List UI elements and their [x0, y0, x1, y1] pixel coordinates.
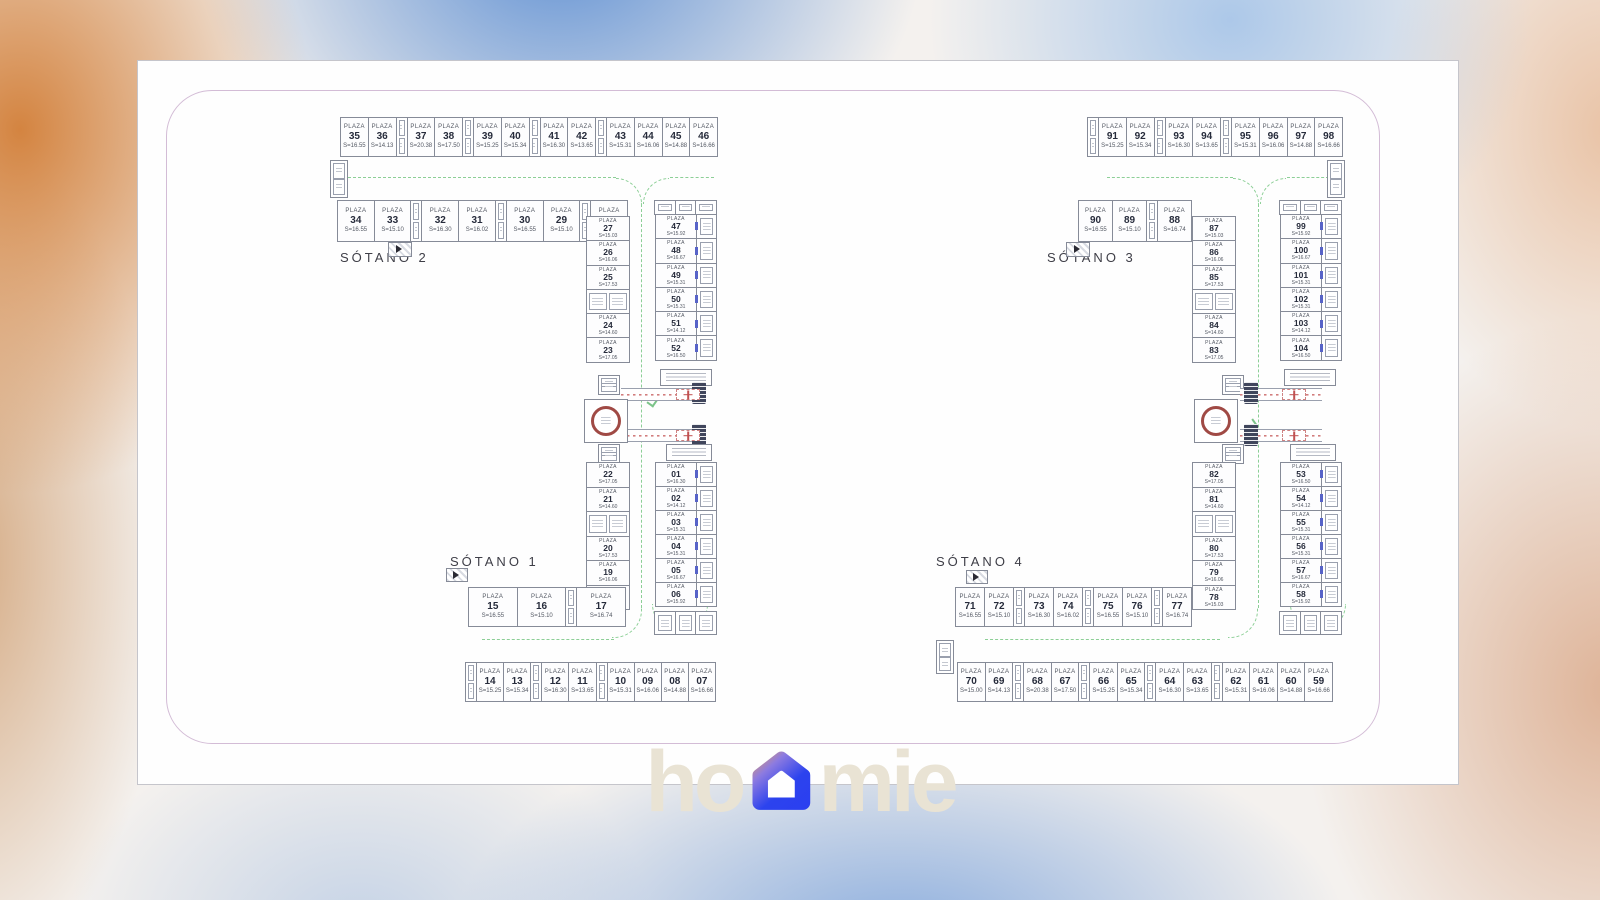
stall-area: S=16.55	[482, 613, 505, 620]
entry-arrow-icon	[973, 573, 979, 581]
stall-number: 09	[642, 677, 653, 687]
stall-number: 34	[350, 216, 361, 226]
stall-plaza-label: PLAZA	[531, 594, 552, 601]
drive-lane-dash	[641, 204, 642, 608]
stall-number: 33	[387, 216, 398, 226]
parking-stall: PLAZA 44 S=16.06	[634, 117, 663, 157]
stall-area: S=14.60	[599, 504, 618, 510]
storage-cell	[1279, 611, 1301, 635]
storage-cell	[1321, 582, 1342, 607]
storage-cell	[696, 486, 717, 511]
stall-number: 30	[519, 216, 530, 226]
stall-area: S=15.31	[667, 527, 686, 533]
s1-mid-row: PLAZA 15 S=16.55 PLAZA 16 S=15.10 PLAZA …	[468, 587, 626, 627]
parking-stall: PLAZA 86 S=16.06	[1192, 240, 1236, 265]
logo-text-left: ho	[645, 749, 742, 816]
parking-stall: PLAZA 43 S=15.31	[606, 117, 635, 157]
s2-aisle-storage-box	[330, 160, 348, 198]
drive-lane-dash	[670, 177, 714, 178]
parking-stall: PLAZA 14 S=15.25	[476, 662, 504, 702]
stall-plaza-label: PLAZA	[382, 208, 403, 215]
stall-area: S=16.06	[1205, 257, 1224, 263]
stall-area: S=15.31	[667, 304, 686, 310]
stall-plaza-label: PLAZA	[988, 594, 1009, 601]
stall-area: S=15.31	[1234, 143, 1257, 150]
stall-plaza-label: PLAZA	[610, 669, 631, 676]
stall-number: 15	[487, 602, 498, 612]
stall-area: S=15.10	[550, 227, 573, 234]
stall-number: 84	[1209, 321, 1218, 330]
stall-number: 04	[671, 542, 680, 551]
stall-area: S=16.55	[343, 143, 366, 150]
stall-area: S=13.65	[571, 688, 594, 695]
parking-stall: PLAZA 91 S=15.25	[1098, 117, 1127, 157]
stall-plaza-label: PLAZA	[988, 669, 1009, 676]
storage-cell	[696, 287, 717, 312]
stall-area: S=16.67	[1292, 255, 1311, 261]
stall-plaza-label: PLAZA	[1055, 669, 1076, 676]
stall-plaza-label: PLAZA	[430, 208, 451, 215]
stall-plaza-label: PLAZA	[1164, 208, 1185, 215]
parking-stall: PLAZA 24 S=14.60	[586, 313, 630, 338]
parking-stall: PLAZA 50 S=15.31	[655, 287, 697, 312]
s4-bottom-row: PLAZA 70 S=15.00 PLAZA 69 S=14.13 PLAZA …	[957, 662, 1333, 702]
stall-area: S=17.53	[1205, 282, 1224, 288]
storage-unit	[1192, 511, 1236, 537]
parking-stall: PLAZA 32 S=16.30	[421, 200, 459, 242]
storage-unit	[1078, 662, 1090, 702]
parking-stall: PLAZA 42 S=13.65	[567, 117, 596, 157]
stall-area: S=16.30	[543, 143, 566, 150]
parking-stall: PLAZA 36 S=14.13	[368, 117, 397, 157]
stall-area: S=16.30	[1028, 613, 1051, 620]
stall-number: 60	[1286, 677, 1297, 687]
stairs-icon	[1244, 424, 1258, 446]
stall-number: 81	[1209, 495, 1218, 504]
stall-area: S=17.05	[1205, 355, 1224, 361]
storage-cell	[696, 311, 717, 336]
stall-area: S=15.03	[1205, 602, 1224, 608]
parking-stall: PLAZA 16 S=15.10	[517, 587, 567, 627]
storage-unit	[1082, 587, 1094, 627]
stall-plaza-label: PLAZA	[480, 669, 501, 676]
parking-stall: PLAZA 93 S=16.30	[1165, 117, 1194, 157]
parking-stall: PLAZA 100 S=16.67	[1280, 238, 1322, 263]
storage-cell	[1321, 287, 1342, 312]
parking-stall: PLAZA 34 S=16.55	[337, 200, 375, 242]
stall-plaza-label: PLAZA	[410, 124, 431, 131]
stall-number: 99	[1296, 222, 1305, 231]
stall-plaza-label: PLAZA	[372, 124, 393, 131]
stall-area: S=16.06	[1205, 577, 1224, 583]
stall-number: 86	[1209, 248, 1218, 257]
stall-number: 70	[966, 677, 977, 687]
storage-cell	[1321, 462, 1342, 487]
stall-area: S=14.12	[667, 503, 686, 509]
stall-number: 79	[1209, 568, 1218, 577]
parking-stall: PLAZA 90 S=16.55	[1078, 200, 1113, 242]
parking-stall: PLAZA 15 S=16.55	[468, 587, 518, 627]
stall-number: 80	[1209, 544, 1218, 553]
parking-stall: PLAZA 94 S=13.65	[1192, 117, 1221, 157]
stall-number: 101	[1294, 271, 1308, 280]
storage-unit	[1220, 117, 1232, 157]
stall-plaza-label: PLAZA	[1093, 669, 1114, 676]
parking-stall: PLAZA 61 S=16.06	[1249, 662, 1278, 702]
s2-second-row: PLAZA 34 S=16.55 PLAZA 33 S=15.10 PLAZA …	[337, 200, 628, 242]
stall-plaza-label: PLAZA	[1225, 669, 1246, 676]
storage-cell	[1320, 611, 1342, 635]
elevator-circle-icon	[591, 406, 621, 436]
stall-number: 61	[1258, 677, 1269, 687]
parking-stall: PLAZA 52 S=16.50	[655, 335, 697, 360]
storage-cell	[1321, 214, 1342, 239]
stall-area: S=15.34	[504, 143, 527, 150]
storage-cell	[696, 534, 717, 559]
stall-area: S=14.88	[664, 688, 687, 695]
s3-top-row: PLAZA 91 S=15.25 PLAZA 92 S=15.34 PLAZA …	[1087, 117, 1343, 157]
parking-stall: PLAZA 53 S=16.50	[1280, 462, 1322, 487]
stall-number: 12	[550, 677, 561, 687]
parking-stall: PLAZA 60 S=14.88	[1277, 662, 1306, 702]
stall-area: S=16.06	[1262, 143, 1285, 150]
stall-number: 94	[1201, 132, 1212, 142]
parking-stall: PLAZA 70 S=15.00	[957, 662, 986, 702]
storage-cell	[696, 238, 717, 263]
parking-stall: PLAZA 80 S=17.53	[1192, 536, 1236, 562]
stall-area: S=14.60	[1205, 504, 1224, 510]
parking-stall: PLAZA 58 S=15.92	[1280, 582, 1322, 607]
parking-stall: PLAZA 37 S=20.38	[407, 117, 436, 157]
parking-stall: PLAZA 11 S=13.65	[568, 662, 596, 702]
stall-plaza-label: PLAZA	[572, 669, 593, 676]
stall-area: S=16.55	[513, 227, 536, 234]
parking-stall: PLAZA 75 S=16.55	[1093, 587, 1123, 627]
stall-number: 65	[1126, 677, 1137, 687]
storage-cell	[696, 263, 717, 288]
parking-stall: PLAZA 20 S=17.53	[586, 536, 630, 562]
sotano-1-label: SÓTANO 1	[450, 554, 539, 569]
stall-area: S=16.06	[1252, 688, 1275, 695]
sotano-2-label: SÓTANO 2	[340, 250, 429, 265]
stall-area: S=15.25	[1101, 143, 1124, 150]
stall-number: 73	[1033, 602, 1044, 612]
stall-number: 87	[1209, 224, 1218, 233]
stall-plaza-label: PLAZA	[1085, 208, 1106, 215]
stall-number: 71	[964, 602, 975, 612]
drive-lane-dash	[1107, 177, 1233, 178]
stall-number: 95	[1240, 132, 1251, 142]
parking-stall: PLAZA 21 S=14.60	[586, 487, 630, 513]
storage-cell	[696, 582, 717, 607]
stall-number: 88	[1169, 216, 1180, 226]
stall-number: 05	[671, 566, 680, 575]
stall-plaza-label: PLAZA	[638, 124, 659, 131]
storage-cell	[1300, 200, 1322, 215]
stall-plaza-label: PLAZA	[1253, 669, 1274, 676]
hoomie-logo: ho mie	[645, 748, 954, 816]
stall-area: S=15.10	[988, 613, 1011, 620]
stall-area: S=14.12	[667, 328, 686, 334]
stall-plaza-label: PLAZA	[637, 669, 658, 676]
storage-cell	[654, 200, 676, 215]
stall-area: S=15.31	[667, 551, 686, 557]
stall-area: S=17.05	[1205, 479, 1224, 485]
entry-arrow-icon	[1074, 245, 1080, 253]
stall-area: S=15.34	[1129, 143, 1152, 150]
stall-number: 93	[1173, 132, 1184, 142]
drive-lane-dash	[985, 639, 1220, 640]
stall-number: 31	[471, 216, 482, 226]
stall-area: S=15.10	[1126, 613, 1149, 620]
stall-number: 19	[603, 568, 612, 577]
drive-lane-dash	[348, 177, 616, 178]
stall-number: 100	[1294, 246, 1308, 255]
parking-stall: PLAZA 27 S=15.03	[586, 216, 630, 241]
stall-number: 07	[696, 677, 707, 687]
storage-cell	[1279, 200, 1301, 215]
stall-area: S=14.88	[665, 143, 688, 150]
stall-area: S=16.50	[1292, 479, 1311, 485]
stall-area: S=16.50	[1292, 353, 1311, 359]
stall-number: 42	[576, 132, 587, 142]
stall-area: S=15.31	[609, 688, 632, 695]
ramp-cross-icon	[1282, 389, 1306, 400]
parking-stall: PLAZA 97 S=14.88	[1287, 117, 1316, 157]
stall-number: 52	[671, 344, 680, 353]
stall-number: 38	[443, 132, 454, 142]
ramp-cross-icon	[1282, 430, 1306, 441]
s3-aisle-storage-box	[1327, 160, 1345, 198]
stall-number: 102	[1294, 295, 1308, 304]
stall-plaza-label: PLAZA	[961, 669, 982, 676]
stall-plaza-label: PLAZA	[1166, 594, 1187, 601]
stall-plaza-label: PLAZA	[482, 594, 503, 601]
s4-storage-row	[1280, 611, 1342, 635]
stall-number: 75	[1102, 602, 1113, 612]
stall-plaza-label: PLAZA	[1235, 124, 1256, 131]
parking-stall: PLAZA 85 S=17.53	[1192, 265, 1236, 290]
parking-stall: PLAZA 102 S=15.31	[1280, 287, 1322, 312]
stall-plaza-label: PLAZA	[571, 124, 592, 131]
parking-stall: PLAZA 81 S=14.60	[1192, 487, 1236, 513]
stall-plaza-label: PLAZA	[1159, 669, 1180, 676]
stall-area: S=14.88	[1290, 143, 1313, 150]
parking-stall: PLAZA 64 S=16.30	[1155, 662, 1184, 702]
parking-stall: PLAZA 73 S=16.30	[1024, 587, 1054, 627]
storage-cell	[695, 200, 717, 215]
stall-area: S=16.30	[1168, 143, 1191, 150]
page-background: { "labels": { "plaza": "PLAZA" }, "logo"…	[0, 0, 1600, 900]
storage-cell	[695, 611, 717, 635]
parking-stall: PLAZA 55 S=15.31	[1280, 510, 1322, 535]
s4-col-82-78: PLAZA 82 S=17.05 PLAZA 81 S=14.60 PLAZA …	[1192, 462, 1236, 610]
stall-plaza-label: PLAZA	[1187, 669, 1208, 676]
stall-plaza-label: PLAZA	[1281, 669, 1302, 676]
parking-stall: PLAZA 67 S=17.50	[1051, 662, 1080, 702]
stall-area: S=16.55	[1084, 227, 1107, 234]
storage-cell	[1321, 238, 1342, 263]
stall-area: S=16.74	[1163, 227, 1186, 234]
parking-stall: PLAZA 68 S=20.38	[1023, 662, 1052, 702]
stall-number: 36	[377, 132, 388, 142]
stall-plaza-label: PLAZA	[345, 208, 366, 215]
parking-stall: PLAZA 77 S=16.74	[1162, 587, 1192, 627]
storage-unit	[1146, 200, 1158, 242]
stall-number: 103	[1294, 319, 1308, 328]
stall-area: S=16.30	[429, 227, 452, 234]
stall-number: 45	[670, 132, 681, 142]
parking-stall: PLAZA 09 S=16.06	[634, 662, 662, 702]
storage-unit	[529, 117, 541, 157]
stall-area: S=16.66	[692, 143, 715, 150]
stall-number: 74	[1062, 602, 1073, 612]
stall-area: S=15.31	[1292, 527, 1311, 533]
stall-number: 35	[349, 132, 360, 142]
storage-cell	[1321, 534, 1342, 559]
stall-plaza-label: PLAZA	[1121, 669, 1142, 676]
parking-stall: PLAZA 06 S=15.92	[655, 582, 697, 607]
stall-area: S=13.65	[1195, 143, 1218, 150]
entry-arrow-icon	[453, 571, 459, 579]
parking-stall: PLAZA 41 S=16.30	[540, 117, 569, 157]
storage-cell	[1321, 311, 1342, 336]
stall-number: 51	[671, 319, 680, 328]
stall-area: S=14.12	[1292, 328, 1311, 334]
storage-cell	[654, 611, 676, 635]
stall-area: S=15.31	[667, 280, 686, 286]
parking-stall: PLAZA 07 S=16.66	[688, 662, 716, 702]
stall-area: S=15.25	[1092, 688, 1115, 695]
stall-plaza-label: PLAZA	[1057, 594, 1078, 601]
stall-area: S=17.53	[599, 553, 618, 559]
parking-stall: PLAZA 79 S=16.06	[1192, 560, 1236, 586]
stall-area: S=14.60	[1205, 330, 1224, 336]
parking-stall: PLAZA 47 S=15.92	[655, 214, 697, 239]
stall-area: S=15.92	[667, 599, 686, 605]
stall-plaza-label: PLAZA	[1318, 124, 1339, 131]
parking-stall: PLAZA 88 S=16.74	[1157, 200, 1192, 242]
parking-stall: PLAZA 22 S=17.05	[586, 462, 630, 488]
parking-stall: PLAZA 31 S=16.02	[458, 200, 496, 242]
stall-number: 64	[1164, 677, 1175, 687]
stall-plaza-label: PLAZA	[1308, 669, 1329, 676]
parking-stall: PLAZA 25 S=17.53	[586, 265, 630, 290]
stall-area: S=16.50	[667, 353, 686, 359]
stall-area: S=15.10	[1118, 227, 1141, 234]
drive-lane-dash	[1258, 204, 1259, 608]
stall-plaza-label: PLAZA	[610, 124, 631, 131]
stall-area: S=16.30	[667, 479, 686, 485]
parking-stall: PLAZA 01 S=16.30	[655, 462, 697, 487]
stall-area: S=20.38	[1026, 688, 1049, 695]
storage-cell	[675, 611, 697, 635]
storage-unit	[586, 289, 630, 314]
stall-area: S=15.92	[1292, 231, 1311, 237]
stall-area: S=16.06	[637, 143, 660, 150]
stall-area: S=16.30	[1158, 688, 1181, 695]
stall-area: S=15.25	[476, 143, 499, 150]
stall-plaza-label: PLAZA	[438, 124, 459, 131]
storage-unit	[530, 662, 542, 702]
stall-plaza-label: PLAZA	[514, 208, 535, 215]
stall-area: S=17.53	[1205, 553, 1224, 559]
stall-plaza-label: PLAZA	[693, 124, 714, 131]
stall-plaza-label: PLAZA	[545, 669, 566, 676]
stall-plaza-label: PLAZA	[344, 124, 365, 131]
parking-stall: PLAZA 04 S=15.31	[655, 534, 697, 559]
storage-unit	[1087, 117, 1099, 157]
parking-stall: PLAZA 33 S=15.10	[374, 200, 412, 242]
stall-number: 01	[671, 470, 680, 479]
s2-storage-row	[655, 200, 717, 215]
s4-aisle-storage-box	[936, 640, 954, 674]
stall-area: S=16.55	[959, 613, 982, 620]
parking-stall: PLAZA 08 S=14.88	[661, 662, 689, 702]
stall-number: 49	[671, 271, 680, 280]
stall-area: S=17.50	[1054, 688, 1077, 695]
stall-plaza-label: PLAZA	[477, 124, 498, 131]
s3-storage-row	[1280, 200, 1342, 215]
stall-number: 46	[698, 132, 709, 142]
storage-cell	[696, 214, 717, 239]
stall-number: 96	[1268, 132, 1279, 142]
stall-number: 50	[671, 295, 680, 304]
ramp-info-box	[1284, 369, 1336, 386]
stall-plaza-label: PLAZA	[959, 594, 980, 601]
parking-stall: PLAZA 76 S=15.10	[1122, 587, 1152, 627]
storage-unit	[596, 662, 608, 702]
storage-cell	[696, 558, 717, 583]
parking-stall: PLAZA 89 S=15.10	[1112, 200, 1147, 242]
storage-cell	[1321, 510, 1342, 535]
stall-area: S=16.02	[1057, 613, 1080, 620]
stall-number: 82	[1209, 470, 1218, 479]
parking-stall: PLAZA 48 S=16.67	[655, 238, 697, 263]
stall-number: 63	[1192, 677, 1203, 687]
stall-number: 54	[1296, 494, 1305, 503]
stall-number: 72	[993, 602, 1004, 612]
parking-stall: PLAZA 39 S=15.25	[473, 117, 502, 157]
parking-stall: PLAZA 65 S=15.34	[1117, 662, 1146, 702]
stall-area: S=17.05	[599, 355, 618, 361]
stall-number: 98	[1323, 132, 1334, 142]
stall-plaza-label: PLAZA	[599, 208, 620, 215]
s4-mid-row: PLAZA 71 S=16.55 PLAZA 72 S=15.10 PLAZA …	[955, 587, 1192, 627]
s2-top-row: PLAZA 35 S=16.55 PLAZA 36 S=14.13 PLAZA …	[340, 117, 718, 157]
storage-cell	[1321, 486, 1342, 511]
parking-stall: PLAZA 62 S=15.31	[1222, 662, 1251, 702]
stall-plaza-label: PLAZA	[1119, 208, 1140, 215]
storage-cell	[1321, 558, 1342, 583]
storage-unit	[1192, 289, 1236, 314]
storage-cell	[696, 510, 717, 535]
stall-plaza-label: PLAZA	[551, 208, 572, 215]
parking-stall: PLAZA 104 S=16.50	[1280, 335, 1322, 360]
parking-stall: PLAZA 23 S=17.05	[586, 337, 630, 362]
stall-number: 89	[1124, 216, 1135, 226]
stall-plaza-label: PLAZA	[1027, 669, 1048, 676]
stall-number: 16	[536, 602, 547, 612]
storage-unit	[586, 511, 630, 537]
parking-stall: PLAZA 66 S=15.25	[1089, 662, 1118, 702]
stall-area: S=13.65	[1186, 688, 1209, 695]
parking-stall: PLAZA 45 S=14.88	[662, 117, 691, 157]
stall-number: 17	[596, 602, 607, 612]
stall-number: 22	[603, 470, 612, 479]
storage-unit	[595, 117, 607, 157]
stall-number: 03	[671, 518, 680, 527]
